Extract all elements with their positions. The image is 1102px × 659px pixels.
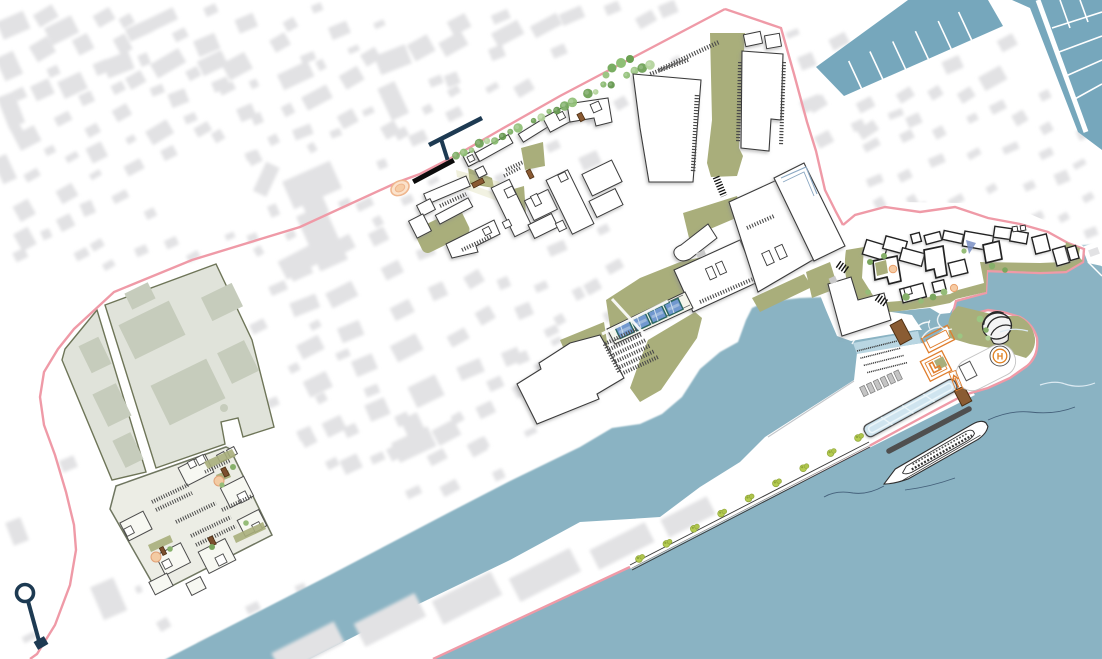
svg-text:H: H	[997, 352, 1004, 362]
